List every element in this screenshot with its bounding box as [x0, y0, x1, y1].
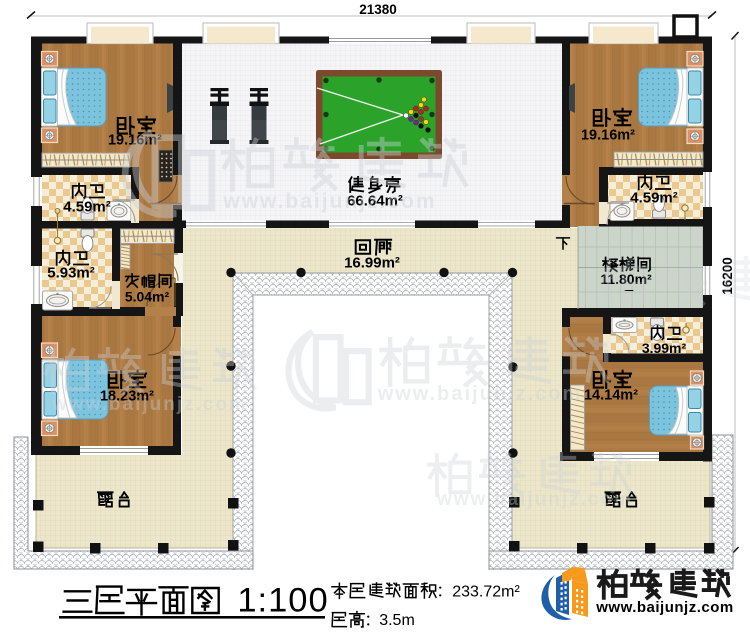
svg-text:1:100: 1:100 [237, 582, 328, 620]
svg-text:www.baijunjz.com: www.baijunjz.com [436, 489, 633, 510]
svg-text:www.baijunjz.com: www.baijunjz.com [595, 599, 733, 616]
svg-text:4.59m²: 4.59m² [630, 190, 678, 207]
svg-text:3.99m²: 3.99m² [642, 340, 687, 356]
svg-text:21380: 21380 [359, 2, 397, 17]
svg-text:www.baijunjz.com: www.baijunjz.com [377, 383, 583, 405]
svg-text:16.99m²: 16.99m² [344, 255, 400, 272]
svg-text:5.04m²: 5.04m² [125, 289, 170, 305]
svg-text:14.14m²: 14.14m² [584, 388, 638, 404]
svg-text:5.93m²: 5.93m² [47, 265, 95, 282]
svg-text:4.59m²: 4.59m² [63, 199, 111, 216]
svg-text:：: ： [436, 583, 451, 600]
svg-text:19.16m²: 19.16m² [581, 128, 635, 144]
svg-text:3.5m: 3.5m [379, 612, 415, 629]
svg-text:233.72m²: 233.72m² [452, 584, 520, 601]
svg-text:：: ： [364, 612, 379, 629]
svg-text:www.baijunjz.com: www.baijunjz.com [51, 394, 248, 415]
svg-text:www.baijunjz.com: www.baijunjz.com [222, 190, 436, 213]
